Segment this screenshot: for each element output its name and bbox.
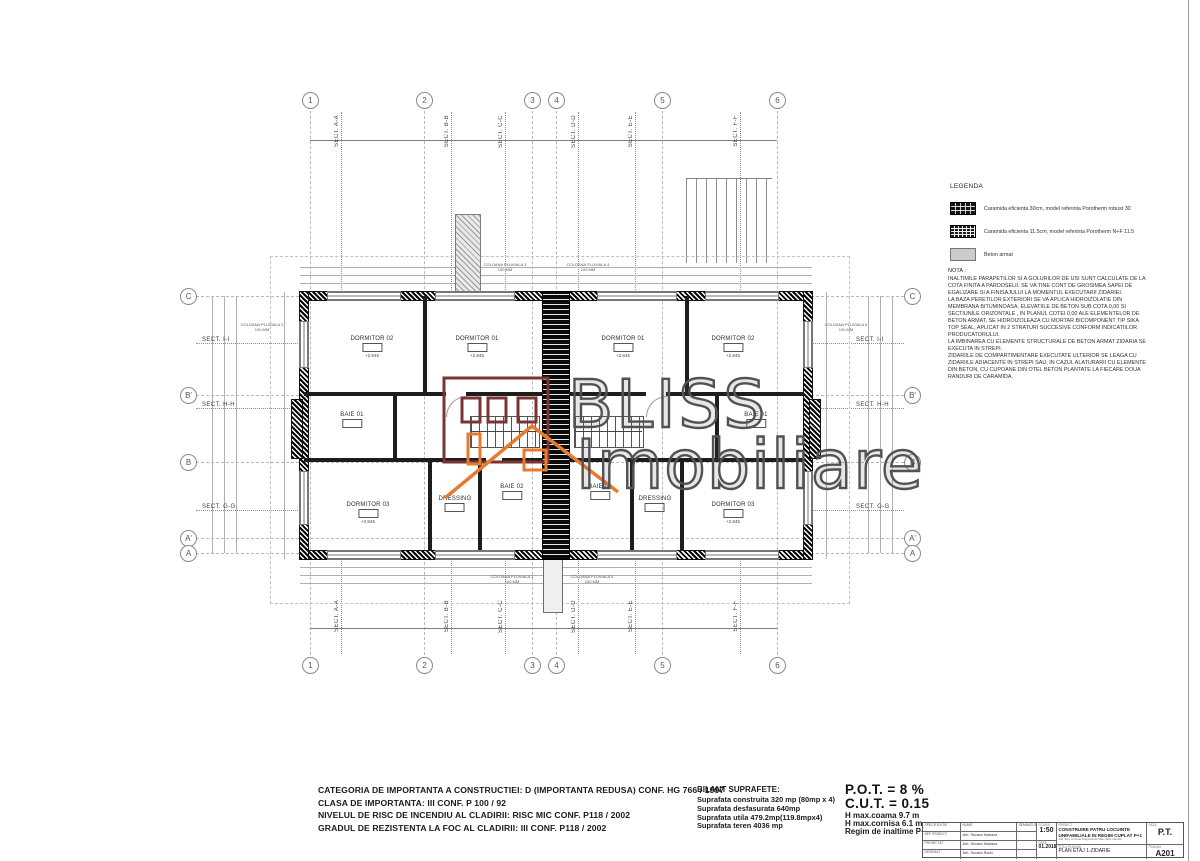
tb-titlu-value: PLAN ETAJ 1-ZIDARIE — [1059, 849, 1145, 855]
section-label: SECT. I-I — [202, 337, 230, 343]
bay-left — [292, 400, 302, 458]
section-label: SECT. E-E — [628, 115, 634, 147]
section-label: SECT. I-I — [856, 337, 884, 343]
section-label: SECT. C-C — [498, 115, 504, 148]
room-name: DORMITOR 03 — [346, 502, 389, 508]
tb-scara-value: 1:50 — [1039, 827, 1055, 835]
section-label: SECT. B-B — [444, 115, 450, 147]
grid-bubble-top-2: 2 — [416, 92, 433, 109]
grid-bubble-left-A: A — [180, 545, 197, 562]
grid-label: B' — [909, 391, 916, 400]
wall-interior — [423, 296, 427, 396]
tb-faza-cell: FAZA P.T. — [1147, 823, 1183, 845]
grid-bubble-bot-5: 5 — [654, 657, 671, 674]
dimension-line — [880, 296, 881, 553]
bilant-lines: Suprafata construita 320 mp (80mp x 4) S… — [697, 796, 835, 831]
room-name: DORMITOR 01 — [601, 336, 644, 342]
grid-label: 2 — [422, 661, 426, 670]
tb-plansa-value: A201 — [1149, 849, 1182, 858]
grid-bubble-right-Bp: B' — [904, 387, 921, 404]
grid-bubble-left-B: B — [180, 454, 197, 471]
bilant-title: BILANT SUPRAFETE: — [697, 785, 780, 794]
grid-label: A — [910, 549, 915, 558]
grid-label: B — [186, 458, 191, 467]
grid-bubble-left-C: C — [180, 288, 197, 305]
window — [328, 292, 400, 300]
tb-role: PROIECTAT — [923, 841, 961, 850]
tb-data-value: 01.2018 — [1039, 845, 1055, 851]
grid-bubble-bot-3: 3 — [524, 657, 541, 674]
legend-item-label: Caramida eficienta 30cm, model referinta… — [984, 206, 1174, 212]
window — [328, 551, 400, 559]
grid-label: 4 — [554, 96, 558, 105]
tb-proiect-address: Jud. Ilfov, comuna Dragomiresti Vale, ta… — [1059, 838, 1145, 841]
section-label: SECT. F-F — [733, 600, 739, 632]
window — [300, 322, 308, 367]
tb-titlu-cell: TITLU PLANSA PLAN ETAJ 1-ZIDARIE — [1057, 845, 1147, 859]
grid-bubble-bot-6: 6 — [769, 657, 786, 674]
grid-label: 3 — [530, 96, 534, 105]
room-area-box — [358, 509, 378, 518]
legend-title: LEGENDA — [950, 183, 983, 190]
grid-bubble-right-A: A — [904, 545, 921, 562]
tb-proiect-cell: PROIECT CONSTRUIRE PATRU LOCUINTE UNIFAM… — [1057, 823, 1147, 845]
room-area-box — [467, 343, 487, 352]
tb-name: Arh. Secara Radu — [961, 850, 1017, 859]
tb-signature-cell — [1017, 850, 1037, 859]
room-name: DORMITOR 02 — [711, 336, 754, 342]
chimney-top — [455, 214, 481, 296]
coloana-pluviala-label: COLOANA PLUVIALA 2 100 MM — [241, 322, 284, 332]
tb-header-nume: NUME — [961, 823, 1017, 832]
cut-value: C.U.T. = 0.15 — [845, 796, 929, 811]
window — [706, 551, 778, 559]
grid-label: 6 — [775, 661, 779, 670]
room-area-box — [613, 343, 633, 352]
dimension-line — [236, 296, 237, 553]
coloana-pluviala-label: COLOANA PLUVIALA 6 100 MM — [825, 322, 868, 332]
tb-scara-cell: SCARA 1:50 — [1037, 823, 1057, 841]
dimension-line — [224, 296, 225, 553]
section-label: SECT. C-C — [498, 600, 504, 633]
window — [598, 551, 676, 559]
legend-item-label: Caramida eficienta 11.5cm, model referin… — [984, 229, 1174, 235]
room-level: +2.845 — [601, 353, 644, 358]
grid-label: A' — [909, 534, 916, 543]
section-label: SECT. H-H — [202, 402, 235, 408]
grid-label: 2 — [422, 96, 426, 105]
coloana-pluviala-label: COLOANA PLUVIALA 5 100 MM — [571, 574, 614, 584]
window — [598, 292, 676, 300]
chimney-bottom — [543, 559, 563, 613]
room-label: DORMITOR 01 +2.845 — [455, 336, 498, 358]
tb-role: DESENAT — [923, 850, 961, 859]
grid-label: 4 — [554, 661, 558, 670]
grid-bubble-bot-4: 4 — [548, 657, 565, 674]
room-label: DORMITOR 02 +2.845 — [711, 336, 754, 358]
room-level: +2.845 — [711, 519, 754, 524]
window — [804, 322, 812, 367]
room-name: DORMITOR 02 — [350, 336, 393, 342]
grid-bubble-top-3: 3 — [524, 92, 541, 109]
watermark-text-imobiliare: Imobiliare — [576, 432, 924, 500]
section-label: SECT. A-A — [334, 115, 340, 147]
room-level: +2.845 — [455, 353, 498, 358]
section-label: SECT. F-F — [733, 115, 739, 147]
tb-header-semnatura: SEMNATURA — [1017, 823, 1037, 832]
tb-name: Arh. Secara Mariana — [961, 841, 1017, 850]
grid-label: 5 — [660, 661, 664, 670]
tb-header-specificatie: SPECIFICATIE — [923, 823, 961, 832]
grid-label: 1 — [308, 96, 312, 105]
grid-label: 5 — [660, 96, 664, 105]
concrete-icon — [950, 248, 976, 261]
section-label: SECT. D-D — [571, 600, 577, 633]
nota-title: NOTA : — [948, 268, 966, 274]
coloana-pluviala-label: COLOANA PLUVIALA 1 100 MM — [491, 574, 534, 584]
pergola-lines — [686, 178, 772, 263]
grid-label: A — [186, 549, 191, 558]
grid-label: B' — [185, 391, 192, 400]
title-block: SPECIFICATIE NUME SEMNATURA SEF PROIECT … — [922, 822, 1184, 858]
room-label: DORMITOR 03 +2.845 — [711, 502, 754, 524]
room-label: BAIE 01 — [340, 412, 363, 429]
grid-label: C — [186, 292, 192, 301]
regim-inaltime: Regim de inaltime P+1 — [845, 828, 930, 837]
room-area-box — [342, 419, 362, 428]
grid-bubble-top-4: 4 — [548, 92, 565, 109]
room-label: DORMITOR 02 +2.845 — [350, 336, 393, 358]
pot-value: P.O.T. = 8 % — [845, 782, 924, 797]
dimension-line — [892, 296, 893, 553]
drawing-sheet: 1 2 3 4 5 6 1 2 3 4 5 6 C B' B A' A C B'… — [0, 0, 1200, 861]
nota-text: INALTIMILE PARAPETILOR SI A GOLURILOR DE… — [948, 276, 1150, 381]
tb-data-cell: DATA 01.2018 — [1037, 841, 1057, 859]
section-cut-line-top — [310, 140, 777, 141]
brick-30-icon — [950, 202, 976, 215]
section-label: SECT. H-H — [856, 402, 889, 408]
grid-bubble-bot-1: 1 — [302, 657, 319, 674]
grid-label: 3 — [530, 661, 534, 670]
coloana-pluviala-label: COLOANA PLUVIALA 4 100 MM — [567, 262, 610, 272]
section-label: SECT. E-E — [628, 600, 634, 632]
section-label: SECT. G-G — [202, 504, 236, 510]
section-label: SECT. A-A — [334, 600, 340, 632]
room-level: +2.845 — [346, 519, 389, 524]
window — [436, 292, 514, 300]
coloana-pluviala-label: COLOANA PLUVIALA 3 100 MM — [484, 262, 527, 272]
window — [300, 472, 308, 524]
reglementari-text: CATEGORIA DE IMPORTANTA A CONSTRUCTIEI: … — [318, 784, 724, 834]
window — [436, 551, 514, 559]
tb-plansa-cell: PLANSA A201 — [1147, 845, 1183, 859]
dimension-line — [868, 296, 869, 553]
grid-bubble-bot-2: 2 — [416, 657, 433, 674]
tb-role: SEF PROIECT — [923, 832, 961, 841]
section-cut-line-bottom — [310, 628, 777, 629]
legend-item-label: Beton armat — [984, 252, 1174, 258]
tb-faza-value: P.T. — [1149, 827, 1182, 837]
tb-signature-cell — [1017, 841, 1037, 850]
room-label: DORMITOR 01 +2.845 — [601, 336, 644, 358]
room-area-box — [723, 343, 743, 352]
brick-115-icon — [950, 225, 976, 238]
sheet-border — [1188, 0, 1189, 861]
grid-bubble-right-C: C — [904, 288, 921, 305]
tb-signature-cell — [1017, 832, 1037, 841]
room-area-box — [362, 343, 382, 352]
window — [706, 292, 778, 300]
dimension-line — [212, 296, 213, 553]
grid-bubble-top-5: 5 — [654, 92, 671, 109]
tb-name: Arh. Secara Mariana — [961, 832, 1017, 841]
section-label: SECT. D-D — [571, 115, 577, 148]
room-name: DORMITOR 01 — [455, 336, 498, 342]
wall-interior — [393, 396, 397, 458]
room-label: DORMITOR 03 +2.845 — [346, 502, 389, 524]
room-level: +2.845 — [350, 353, 393, 358]
grid-label: 6 — [775, 96, 779, 105]
grid-label: A' — [185, 534, 192, 543]
grid-label: 1 — [308, 661, 312, 670]
grid-bubble-top-1: 1 — [302, 92, 319, 109]
room-name: BAIE 01 — [340, 412, 363, 418]
section-label: SECT. B-B — [444, 600, 450, 632]
room-area-box — [723, 509, 743, 518]
grid-bubble-left-Bp: B' — [180, 387, 197, 404]
grid-bubble-top-6: 6 — [769, 92, 786, 109]
grid-label: C — [910, 292, 916, 301]
room-level: +2.845 — [711, 353, 754, 358]
